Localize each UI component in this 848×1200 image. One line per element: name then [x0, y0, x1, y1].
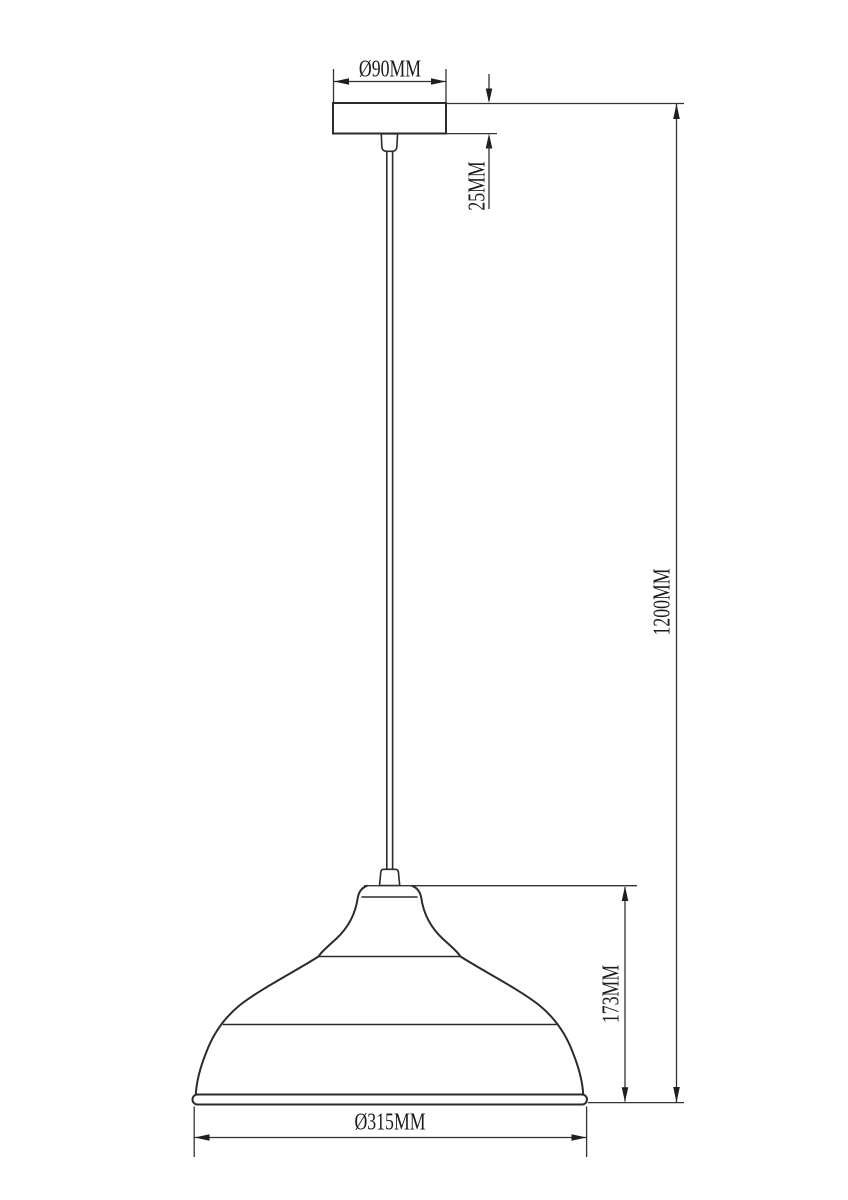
technical-drawing-canvas: Ø90MM 25MM 1200MM 173MM Ø315MM [0, 0, 848, 1200]
shade-height-arrow-bottom [622, 1087, 629, 1102]
shade-height-arrow-top [622, 886, 629, 901]
shade-diameter-label: Ø315MM [354, 1110, 425, 1137]
canopy-height-label: 25MM [464, 161, 491, 210]
overall-height-label: 1200MM [649, 568, 676, 635]
linework-layer [0, 0, 848, 1200]
overall-height-arrow-bottom [673, 1087, 680, 1103]
shade-dia-arrow-right [572, 1134, 587, 1141]
canopy-height-arrow-down [486, 89, 493, 104]
shade-outline [196, 886, 583, 1095]
ceiling-canopy [333, 103, 446, 134]
shade-height-label: 173MM [598, 965, 625, 1023]
canopy-dia-arrow-right [431, 78, 446, 85]
shade-dia-arrow-left [195, 1134, 210, 1141]
cord-grip [381, 134, 397, 152]
canopy-dia-arrow-left [334, 78, 349, 85]
shade-rim [193, 1095, 588, 1105]
overall-height-arrow-top [673, 104, 680, 119]
canopy-diameter-label: Ø90MM [358, 57, 420, 84]
ferrule [380, 869, 400, 885]
